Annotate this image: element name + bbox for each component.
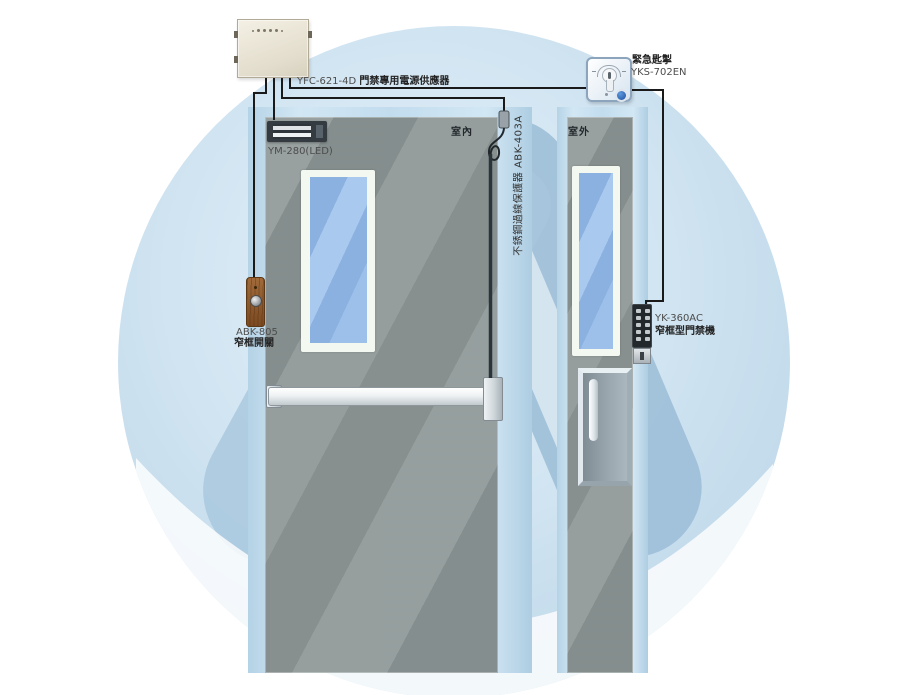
- panic-bar-latch-housing: [483, 377, 503, 421]
- panic-bar: [268, 387, 486, 406]
- exit-push-button: [250, 295, 262, 307]
- exit-button-model: ABK-805: [236, 327, 278, 338]
- pull-handle-bar: [589, 379, 598, 441]
- psu-mount-tab: [308, 31, 312, 38]
- exit-button-device: [246, 277, 265, 327]
- power-supply-name: 門禁專用電源供應器: [359, 76, 449, 87]
- cable-protector-label: 不銹鋼過線保護器 ABK-403A: [510, 106, 525, 266]
- window-glass: [579, 173, 613, 349]
- psu-mount-tab: [234, 56, 238, 63]
- psu-mount-tab: [234, 31, 238, 38]
- power-supply-label: YFC-621-4D 門禁專用電源供應器: [297, 76, 449, 87]
- recessed-pull-handle: [578, 368, 632, 486]
- key-cylinder-stem: [606, 80, 614, 92]
- exit-button-name: 窄框開關: [234, 338, 274, 349]
- power-supply-model: YFC-621-4D: [297, 76, 356, 87]
- window-glass: [310, 177, 367, 343]
- screw-dot: [254, 286, 257, 289]
- keypad-model: YK-360AC: [655, 313, 703, 324]
- keypad-buttons: [633, 305, 651, 341]
- handle-recess: [583, 373, 627, 481]
- main-door-window: [301, 170, 375, 352]
- maglock-label: YM-280(LED): [268, 146, 333, 157]
- dial-tick: [592, 71, 596, 72]
- indoor-label: 室內: [451, 123, 473, 138]
- access-keypad: [632, 304, 652, 348]
- dial-tick: [622, 71, 626, 72]
- emergency-key-switch: [586, 57, 632, 102]
- psu-led-row: [252, 29, 283, 32]
- reader-slot: [640, 352, 644, 360]
- emergency-switch-model: YKS-702EN: [631, 67, 687, 78]
- keypad-name: 窄框型門禁機: [655, 326, 715, 337]
- maglock-armature-plate: [273, 124, 311, 139]
- power-supply-box: [237, 19, 309, 78]
- outdoor-label: 室外: [568, 123, 590, 138]
- indicator-dot: [605, 93, 608, 96]
- keypad-reader-plate: [633, 348, 651, 364]
- emergency-switch-name: 緊急匙掣: [632, 55, 672, 66]
- outdoor-door-window: [572, 166, 620, 356]
- maglock-led-window: [316, 125, 323, 138]
- keyhole-icon: [608, 72, 611, 79]
- reset-button: [615, 89, 628, 102]
- magnetic-lock: [267, 121, 327, 142]
- diagram-canvas: YFC-621-4D 門禁專用電源供應器 YM-280(LED) 室內 室外 不…: [0, 0, 900, 695]
